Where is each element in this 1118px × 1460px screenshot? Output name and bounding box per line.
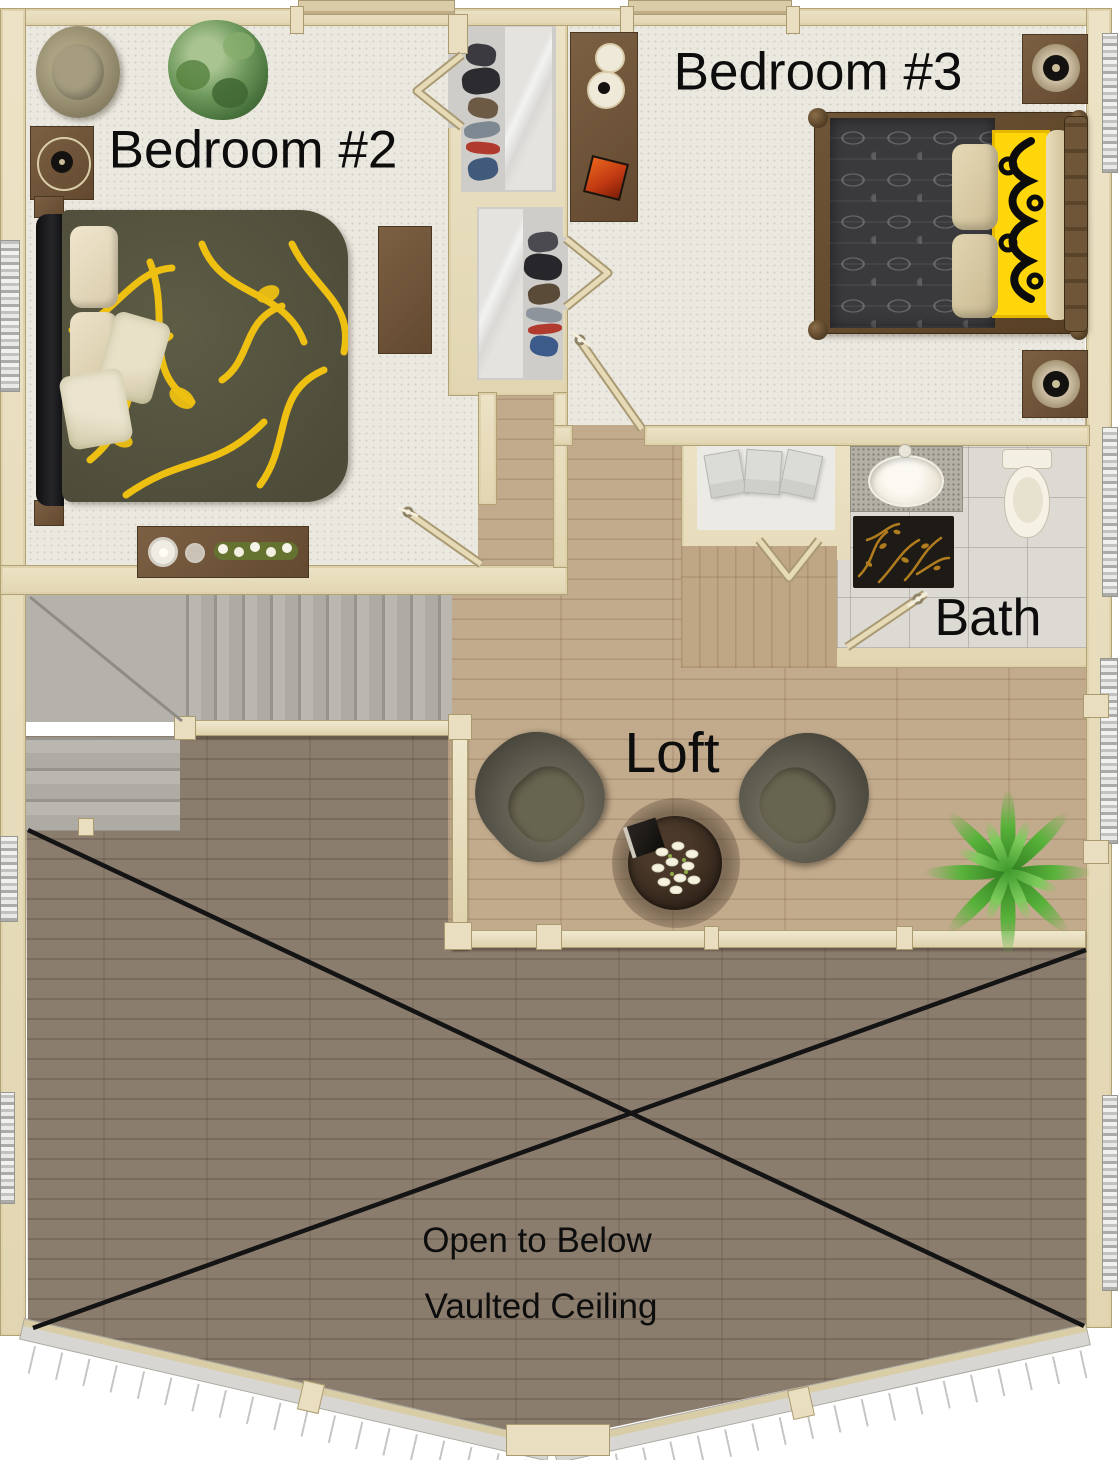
stair-railing	[178, 720, 470, 736]
bed2-headboard	[36, 214, 64, 506]
stair-newel-post	[78, 818, 94, 836]
dresser-bedroom3	[570, 32, 638, 222]
window-left-lower2	[0, 1092, 15, 1204]
stair-flight-lower	[26, 737, 180, 831]
nightstand-bedroom3-top	[1022, 34, 1088, 104]
window-right-bath	[1102, 427, 1118, 597]
window-left-lower	[0, 836, 18, 922]
floor-plan: Bedroom #2 Bedroom #3 Bath Loft Open to …	[0, 0, 1118, 1460]
flower-vase	[648, 838, 706, 894]
wall-bedroom3-bottom-stub	[553, 425, 573, 446]
closet-bedroom3-mirror-door	[479, 209, 523, 378]
wall-top	[8, 8, 1104, 26]
sink	[868, 455, 944, 507]
wall-bedroom3-bottom	[644, 425, 1090, 446]
bed3-post	[808, 320, 828, 340]
folded-towel	[744, 449, 783, 495]
faucet	[898, 444, 912, 458]
bed2-pillow	[70, 226, 118, 308]
railing-post	[536, 924, 562, 950]
bed3-pillow	[952, 234, 998, 318]
label-open-to-below: Open to Below	[422, 1221, 652, 1261]
label-loft: Loft	[624, 720, 719, 786]
label-bedroom3: Bedroom #3	[674, 42, 963, 103]
wall-post	[448, 14, 468, 54]
window-left-bedroom2	[0, 240, 20, 392]
wall-post	[786, 6, 800, 34]
desk-bedroom2	[378, 226, 432, 354]
bed3-post	[808, 108, 828, 128]
closet-clothes-bedroom2	[462, 42, 506, 188]
wall-post	[1083, 694, 1109, 718]
wall-bedroom2-right	[478, 392, 497, 505]
bath-rug	[853, 516, 954, 588]
wall-bedroom3-left	[553, 392, 568, 568]
palm-plant	[928, 786, 1088, 944]
window-right-bedroom3	[1102, 33, 1118, 173]
stair-landing	[26, 593, 186, 722]
prow-tip-post	[506, 1424, 610, 1456]
wall-post	[290, 6, 304, 34]
wall-post	[620, 6, 634, 34]
folded-towel	[703, 449, 746, 499]
bed3-yellow-runner	[992, 130, 1050, 318]
bed2-accent-pillow	[58, 367, 134, 451]
nightstand-bedroom2-top	[30, 126, 94, 200]
bath-vestibule-floor	[681, 546, 837, 668]
bed3-headboard	[1064, 116, 1088, 332]
loft-railing-left	[452, 722, 468, 948]
closet-bedroom2-mirror-door	[505, 27, 552, 190]
label-vaulted-ceiling: Vaulted Ceiling	[425, 1287, 658, 1327]
window-right-loft	[1100, 658, 1118, 844]
stair-flight-upper	[186, 593, 452, 722]
round-lounge-chair	[36, 26, 120, 118]
railing-post	[896, 926, 913, 950]
dresser-bedroom2	[137, 526, 309, 578]
nightstand-bedroom3-bottom	[1022, 350, 1088, 418]
bath-door-opening	[837, 560, 850, 648]
window-bay-top-right	[628, 0, 792, 15]
label-bath: Bath	[935, 588, 1042, 648]
closet-clothes-bedroom3	[524, 232, 564, 358]
railing-post	[444, 922, 472, 950]
label-bedroom2: Bedroom #2	[109, 120, 398, 181]
bed3-pillow	[952, 144, 998, 230]
railing-post	[174, 716, 196, 740]
closet-bedroom2-door-opening	[448, 53, 463, 128]
railing-post	[704, 926, 719, 950]
railing-post	[448, 714, 472, 740]
window-bay-top-left	[298, 0, 455, 15]
toilet-bowl	[1004, 466, 1050, 538]
window-right-lower	[1102, 1095, 1118, 1291]
